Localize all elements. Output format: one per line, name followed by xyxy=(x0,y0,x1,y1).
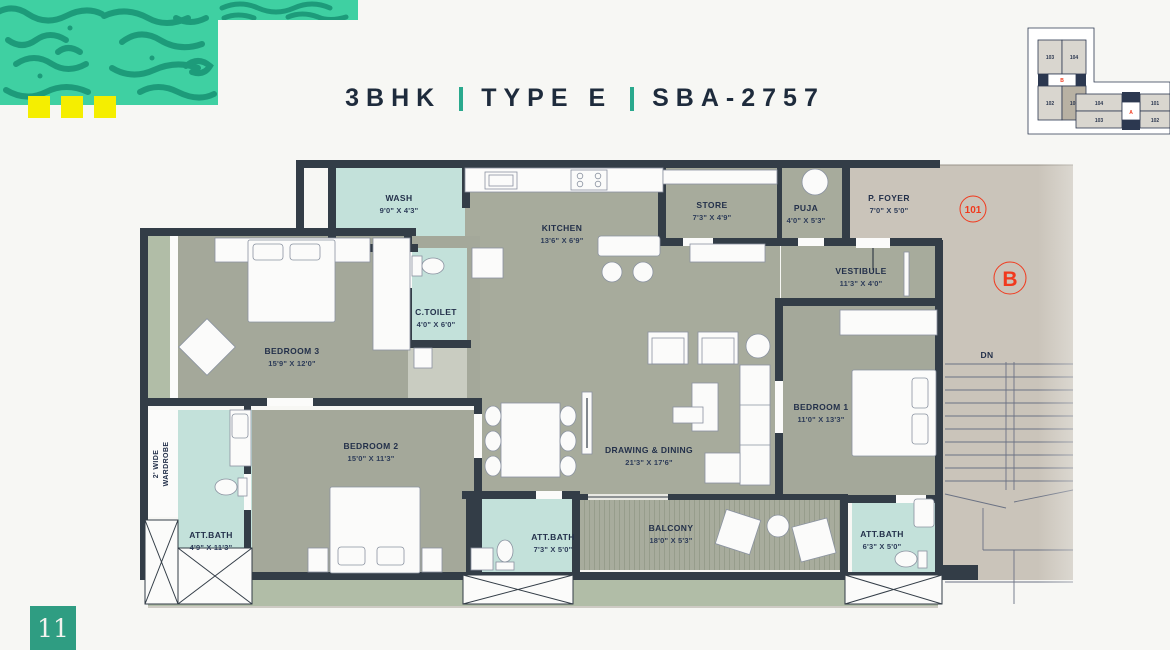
pillow xyxy=(377,547,404,565)
svg-text:13'6" X 6'9": 13'6" X 6'9" xyxy=(540,236,583,245)
svg-text:9'0" X 4'3": 9'0" X 4'3" xyxy=(380,206,419,215)
balcony-label: BALCONY xyxy=(649,523,694,533)
foyer-floor xyxy=(845,168,940,240)
title-separator xyxy=(459,87,463,111)
floor-plan: WASH 9'0" X 4'3" KITCHEN 13'6" X 6'9" ST… xyxy=(138,152,1073,612)
pillow xyxy=(253,244,283,260)
toilet-tank xyxy=(238,478,247,496)
armchair xyxy=(648,332,688,364)
key-plan: 103 104 102 101 B 104 101 103 102 A xyxy=(1018,16,1170,138)
side-table xyxy=(422,548,442,572)
balcony-table xyxy=(767,515,789,537)
kitchen-label: KITCHEN xyxy=(542,223,583,233)
svg-text:104: 104 xyxy=(1095,101,1104,107)
svg-text:102: 102 xyxy=(1151,118,1160,124)
bedroom2-label: BEDROOM 2 xyxy=(343,441,398,451)
bedroom3-wardrobe xyxy=(373,238,410,350)
chair xyxy=(560,456,576,476)
title-bhk: 3BHK xyxy=(345,84,441,113)
yellow-square xyxy=(61,96,83,118)
key-plan-right-block: 104 101 103 102 A xyxy=(1076,92,1170,130)
svg-text:104: 104 xyxy=(1070,55,1079,61)
c-toilet-label: C.TOILET xyxy=(415,307,457,317)
svg-text:6'3" X 5'0": 6'3" X 5'0" xyxy=(863,542,902,551)
chair xyxy=(485,431,501,451)
title-type: TYPE E xyxy=(481,84,612,113)
wash-label: WASH xyxy=(385,193,412,203)
toilet-tank xyxy=(918,551,927,568)
ledge-band xyxy=(170,236,178,402)
decor-pattern-block xyxy=(0,0,218,105)
cabinet xyxy=(904,252,909,296)
svg-text:101: 101 xyxy=(1151,101,1160,107)
store-shelf xyxy=(663,170,777,184)
counter xyxy=(690,244,765,262)
toilet-tank xyxy=(412,256,422,276)
svg-text:11'0" X 13'3": 11'0" X 13'3" xyxy=(797,415,844,424)
svg-text:7'0" X 5'0": 7'0" X 5'0" xyxy=(870,206,909,215)
key-plan-core-letter: A xyxy=(1129,110,1133,116)
refrigerator xyxy=(472,248,503,278)
sofa-chaise xyxy=(705,453,740,483)
stool xyxy=(633,262,653,282)
svg-text:2' WIDE: 2' WIDE xyxy=(153,450,160,479)
vestibule-label: VESTIBULE xyxy=(835,266,886,276)
balcony-seat xyxy=(715,509,760,554)
outer-top-wall xyxy=(296,160,940,168)
svg-text:4'9" X 11'3": 4'9" X 11'3" xyxy=(190,543,233,552)
page-number: 11 xyxy=(37,614,69,643)
pillow xyxy=(290,244,320,260)
bedroom1-top-wall xyxy=(781,298,940,306)
decor-pattern-strip xyxy=(218,0,358,20)
foyer-label: P. FOYER xyxy=(868,193,910,203)
yellow-square xyxy=(28,96,50,118)
svg-text:18'0" X 5'3": 18'0" X 5'3" xyxy=(649,536,692,545)
toilet-bowl xyxy=(895,551,917,567)
att-bath1-label: ATT.BATH xyxy=(860,529,904,539)
balcony-bottom-wall xyxy=(572,572,848,580)
toilet-tank xyxy=(496,562,514,570)
washbasin xyxy=(914,499,934,527)
page-number-badge: 11 xyxy=(30,606,76,650)
stair-wall-stub xyxy=(940,565,978,580)
bedroom1-label: BEDROOM 1 xyxy=(793,402,848,412)
title-sba: SBA-2757 xyxy=(652,84,825,113)
svg-text:4'0" X 6'0": 4'0" X 6'0" xyxy=(417,320,456,329)
svg-text:11'3" X 4'0": 11'3" X 4'0" xyxy=(840,279,883,288)
yellow-square xyxy=(94,96,116,118)
svg-text:7'3" X 4'9": 7'3" X 4'9" xyxy=(693,213,732,222)
washbasin xyxy=(232,414,248,438)
title-separator xyxy=(630,87,634,111)
chair xyxy=(485,406,501,426)
island-counter xyxy=(598,236,660,256)
side-table-round xyxy=(746,334,770,358)
bedroom1-wardrobe xyxy=(840,310,937,335)
svg-text:102: 102 xyxy=(1046,101,1055,107)
pillow xyxy=(338,547,365,565)
chair xyxy=(485,456,501,476)
svg-text:4'0" X 5'3": 4'0" X 5'3" xyxy=(787,216,826,225)
store-label: STORE xyxy=(696,200,727,210)
svg-text:21'3" X 17'6": 21'3" X 17'6" xyxy=(625,458,673,467)
balcony-seat xyxy=(792,518,836,562)
bedroom3-label: BEDROOM 3 xyxy=(264,346,319,356)
pillow xyxy=(912,378,928,408)
chair xyxy=(560,406,576,426)
puja-basin xyxy=(802,169,828,195)
drawing-dining-label: DRAWING & DINING xyxy=(605,445,693,455)
washbasin xyxy=(471,548,493,570)
key-plan-core-letter: B xyxy=(1060,78,1064,84)
stairs-dn-label: DN xyxy=(980,350,993,360)
plan-edge-fade xyxy=(1038,150,1170,625)
stool xyxy=(602,262,622,282)
toilet-bowl xyxy=(497,540,513,562)
puja-label: PUJA xyxy=(794,203,818,213)
squiggle-pattern xyxy=(0,0,218,105)
unit-number: 101 xyxy=(965,205,982,216)
washbasin xyxy=(414,348,432,368)
bedroom3-top-wall xyxy=(140,228,416,236)
armchair xyxy=(698,332,738,364)
svg-text:7'3" X 5'0": 7'3" X 5'0" xyxy=(534,545,573,554)
att-bath-common-label: ATT.BATH xyxy=(531,532,575,542)
svg-text:103: 103 xyxy=(1046,55,1055,61)
dining-table xyxy=(501,403,560,477)
block-letter: B xyxy=(1002,268,1017,291)
squiggle-pattern xyxy=(218,0,358,20)
svg-text:15'0" X 11'3": 15'0" X 11'3" xyxy=(347,454,394,463)
pillow xyxy=(912,414,928,444)
att-bath2-label: ATT.BATH xyxy=(189,530,233,540)
toilet-bowl xyxy=(215,479,237,495)
page: WASH 9'0" X 4'3" KITCHEN 13'6" X 6'9" ST… xyxy=(0,0,1170,650)
svg-text:103: 103 xyxy=(1095,118,1104,124)
svg-text:WARDROBE: WARDROBE xyxy=(163,442,170,487)
side-ledge xyxy=(148,236,170,402)
svg-text:15'9" X 12'0": 15'9" X 12'0" xyxy=(268,359,316,368)
side-table xyxy=(308,548,328,572)
console xyxy=(673,407,703,423)
chair xyxy=(560,431,576,451)
stove xyxy=(571,170,607,190)
sofa xyxy=(740,365,770,485)
toilet-bowl xyxy=(422,258,444,274)
